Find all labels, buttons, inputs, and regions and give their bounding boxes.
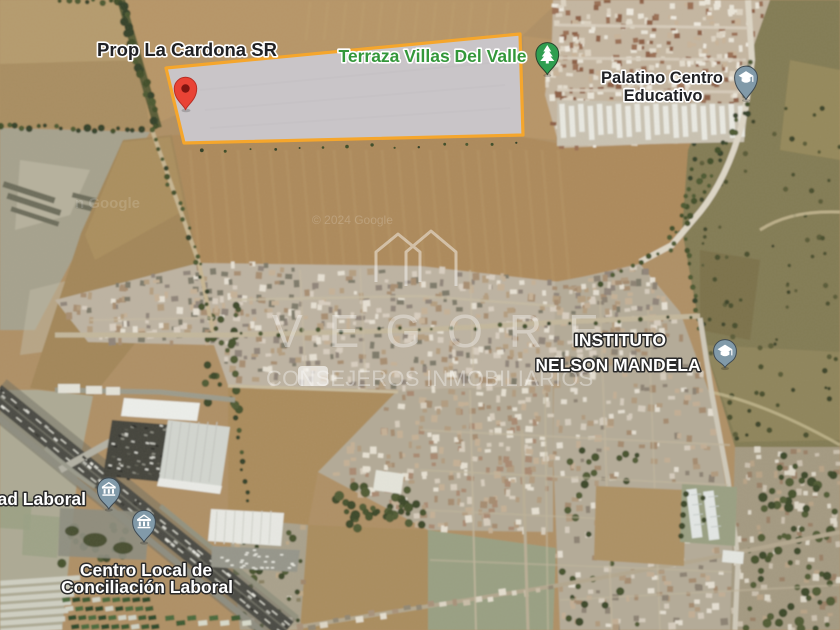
svg-text:© 2024 Google: © 2024 Google [312, 213, 393, 227]
svg-text:INSTITUTO: INSTITUTO [574, 330, 666, 350]
svg-text:n Google: n Google [75, 195, 140, 212]
svg-text:Terraza Villas Del Valle: Terraza Villas Del Valle [338, 46, 526, 66]
svg-text:VEGORE: VEGORE [272, 305, 625, 357]
svg-text:ad Laboral: ad Laboral [0, 489, 86, 509]
svg-text:Educativo: Educativo [624, 87, 703, 105]
svg-text:Palatino Centro: Palatino Centro [601, 69, 723, 87]
svg-text:Conciliación Laboral: Conciliación Laboral [61, 577, 233, 597]
svg-text:Prop La Cardona SR: Prop La Cardona SR [97, 39, 277, 60]
svg-text:NELSON MANDELA: NELSON MANDELA [535, 355, 701, 375]
